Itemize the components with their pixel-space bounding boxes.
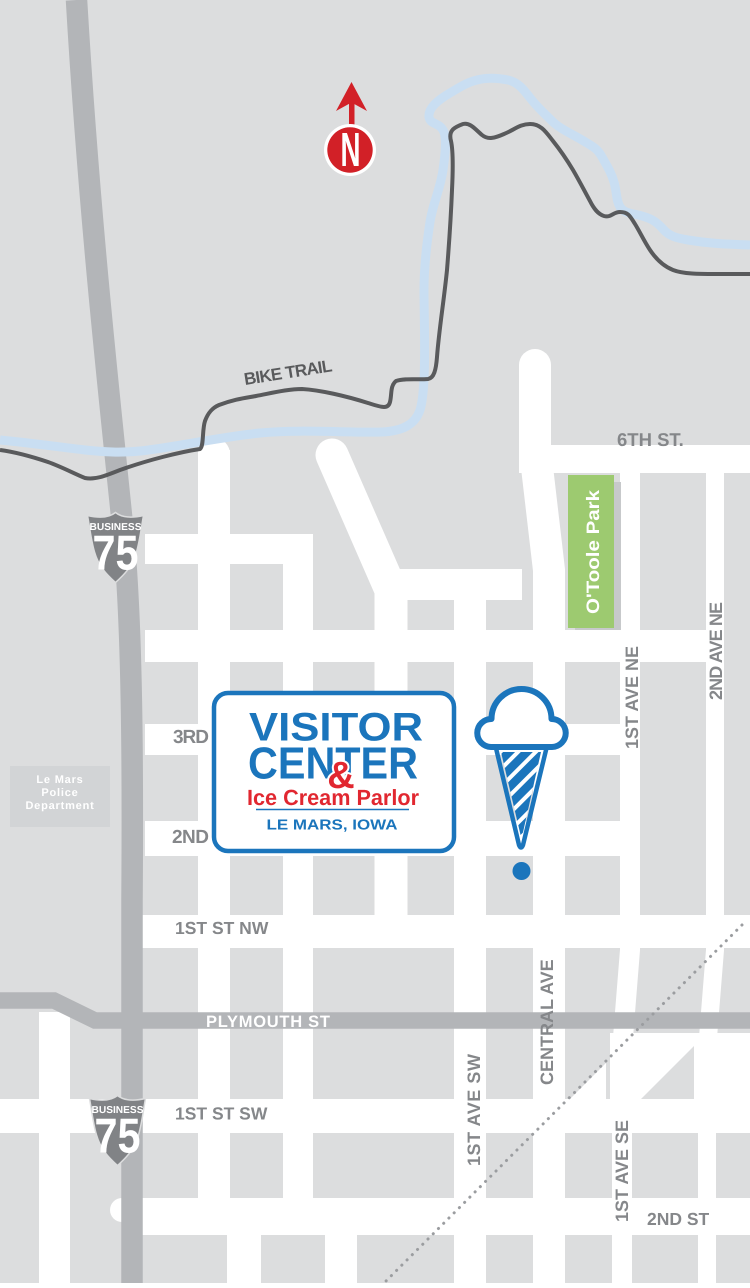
svg-text:LE MARS, IOWA: LE MARS, IOWA (267, 818, 399, 834)
svg-text:Department: Department (25, 800, 94, 812)
svg-text:N: N (341, 124, 361, 177)
svg-text:6TH ST.: 6TH ST. (617, 429, 684, 450)
svg-text:O'Toole Park: O'Toole Park (583, 489, 603, 614)
svg-text:2ND AVE NE: 2ND AVE NE (706, 602, 726, 700)
svg-text:1ST AVE NE: 1ST AVE NE (622, 646, 642, 749)
svg-text:2ND: 2ND (172, 827, 209, 848)
svg-text:Le Mars: Le Mars (36, 774, 83, 786)
svg-text:1ST ST NW: 1ST ST NW (175, 918, 269, 938)
svg-text:3RD: 3RD (173, 727, 209, 748)
svg-text:1ST ST SW: 1ST ST SW (175, 1104, 268, 1124)
svg-text:Police: Police (41, 787, 78, 799)
svg-text:PLYMOUTH ST: PLYMOUTH ST (206, 1013, 330, 1031)
svg-text:1ST AVE SW: 1ST AVE SW (464, 1054, 484, 1166)
svg-text:1ST AVE SE: 1ST AVE SE (612, 1120, 632, 1222)
svg-text:Ice Cream Parlor: Ice Cream Parlor (247, 785, 419, 810)
svg-text:2ND ST: 2ND ST (647, 1209, 710, 1229)
svg-text:CENTRAL AVE: CENTRAL AVE (537, 959, 557, 1085)
